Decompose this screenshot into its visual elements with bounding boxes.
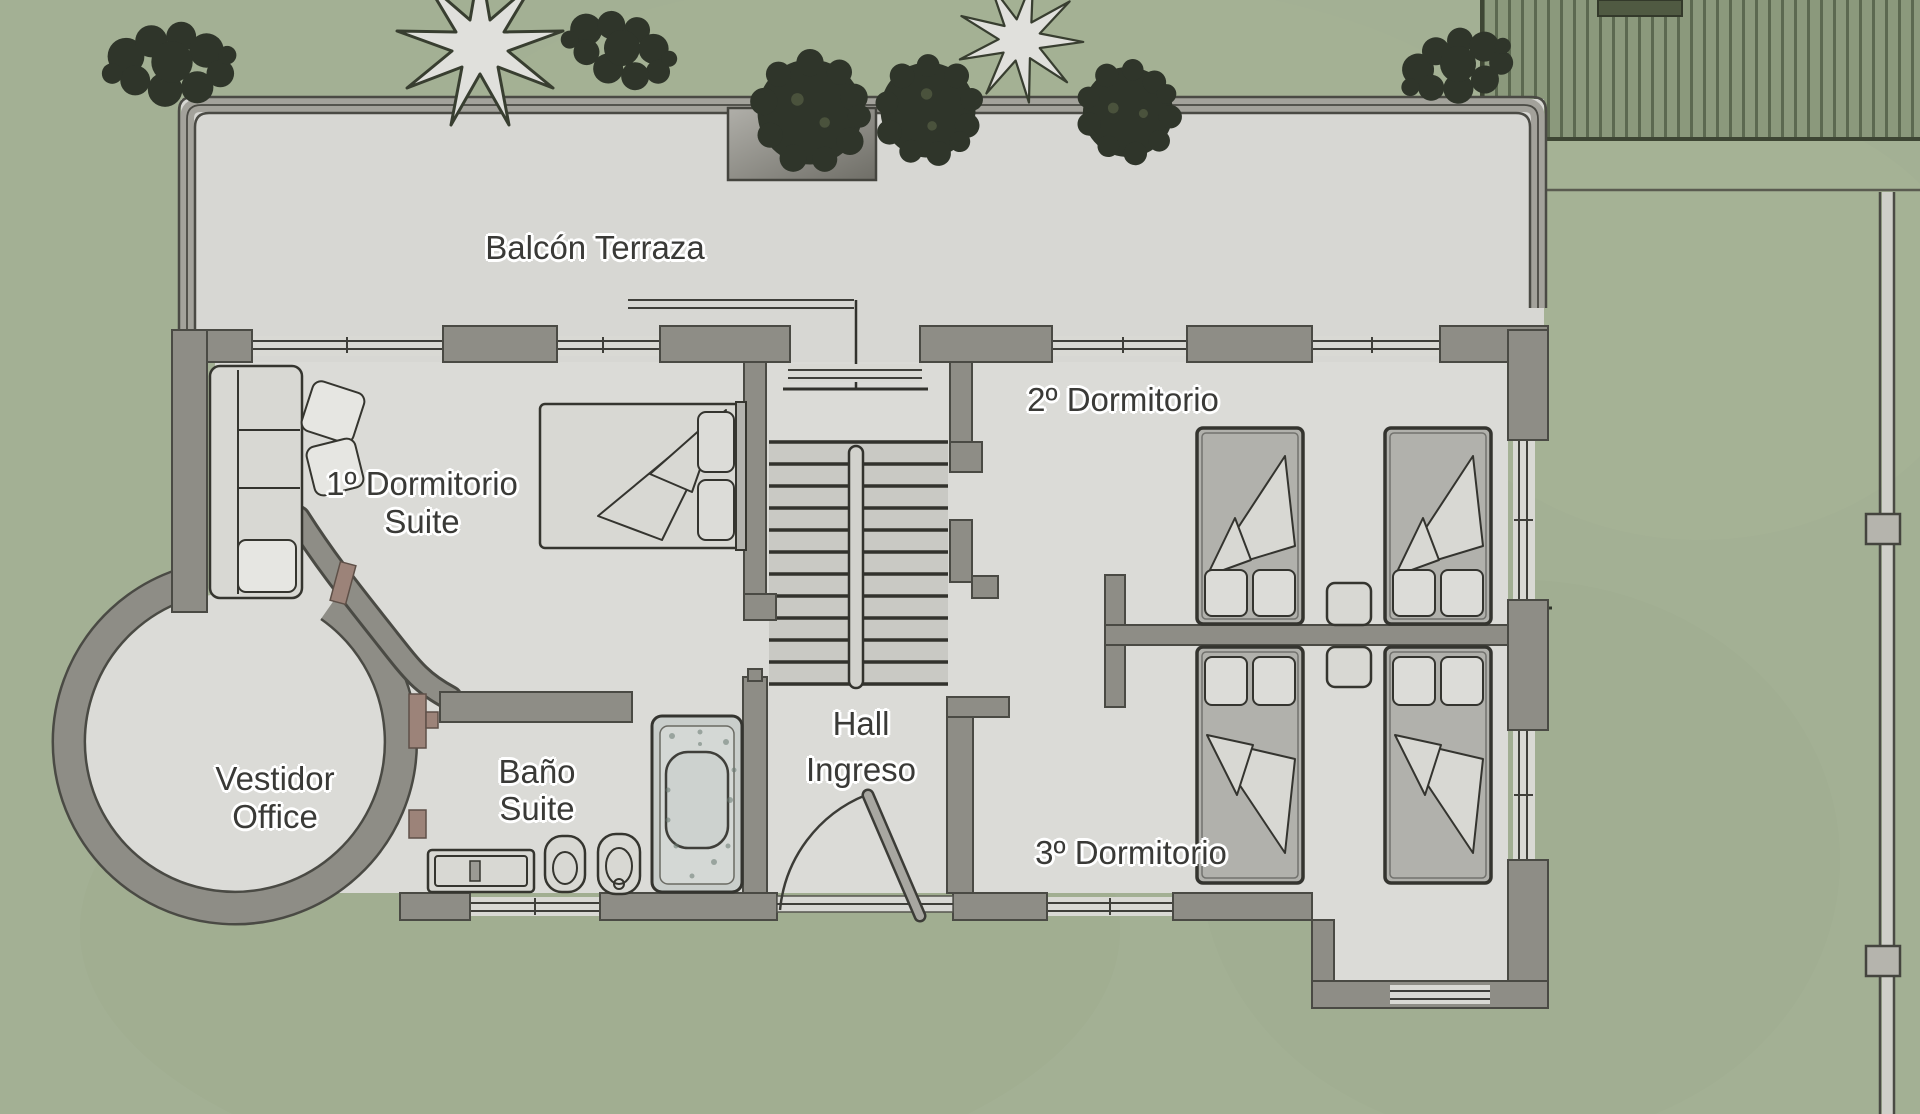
room-label-hall-line1: Hall	[833, 706, 890, 742]
single-bed	[1385, 647, 1491, 883]
room-label-dressing-line1: Vestidor	[215, 761, 334, 797]
floor-plan: Balcón Terraza 1º Dormitorio Suite 2º Do…	[0, 0, 1920, 1114]
bathroom-north-wall	[440, 692, 632, 722]
single-bed	[1197, 428, 1303, 624]
room-label-bathroom-line2: Suite	[499, 791, 574, 827]
stair-east-wall	[950, 362, 972, 442]
headboard	[736, 402, 746, 550]
toilet	[598, 834, 640, 894]
hall-east-wall	[947, 717, 973, 893]
double-bed	[540, 402, 746, 550]
room-label-bedroom2: 2º Dormitorio	[1027, 382, 1219, 418]
entry-threshold	[777, 896, 953, 912]
room-label-bathroom-line1: Baño	[498, 754, 575, 790]
room-label-balcony-terrace: Balcón Terraza	[485, 230, 705, 266]
bathroom-east-wall	[743, 677, 767, 893]
bathroom-door-jamb	[409, 810, 426, 838]
fence-post	[1866, 946, 1900, 976]
room-label-bedroom1-line2: Suite	[384, 504, 459, 540]
stairwell-window	[788, 364, 922, 382]
stair-handrail	[849, 446, 863, 688]
dressing-room-floor	[86, 593, 384, 891]
stair-west-wall	[744, 362, 766, 594]
deck-step	[1598, 0, 1682, 16]
single-bed	[1385, 428, 1491, 624]
room-label-hall-line2: Ingreso	[806, 752, 916, 788]
east-wall	[1508, 330, 1548, 1008]
pillow	[698, 412, 734, 472]
floor-plan-drawing	[0, 0, 1920, 1114]
nightstand	[1327, 583, 1371, 625]
room-label-bedroom3: 3º Dormitorio	[1035, 835, 1227, 871]
bathroom-door-jamb	[409, 694, 426, 748]
bedroom-divider-wall	[1105, 625, 1508, 645]
room-label-dressing-line2: Office	[232, 799, 318, 835]
room-label-bedroom1-line1: 1º Dormitorio	[326, 466, 518, 502]
bidet	[545, 836, 585, 892]
west-wall	[172, 330, 207, 612]
vanity-sink	[428, 850, 534, 892]
window	[1390, 985, 1490, 1004]
pillow	[698, 480, 734, 540]
fence-post	[1866, 514, 1900, 544]
bathtub	[652, 716, 742, 892]
nightstand	[1327, 647, 1371, 687]
